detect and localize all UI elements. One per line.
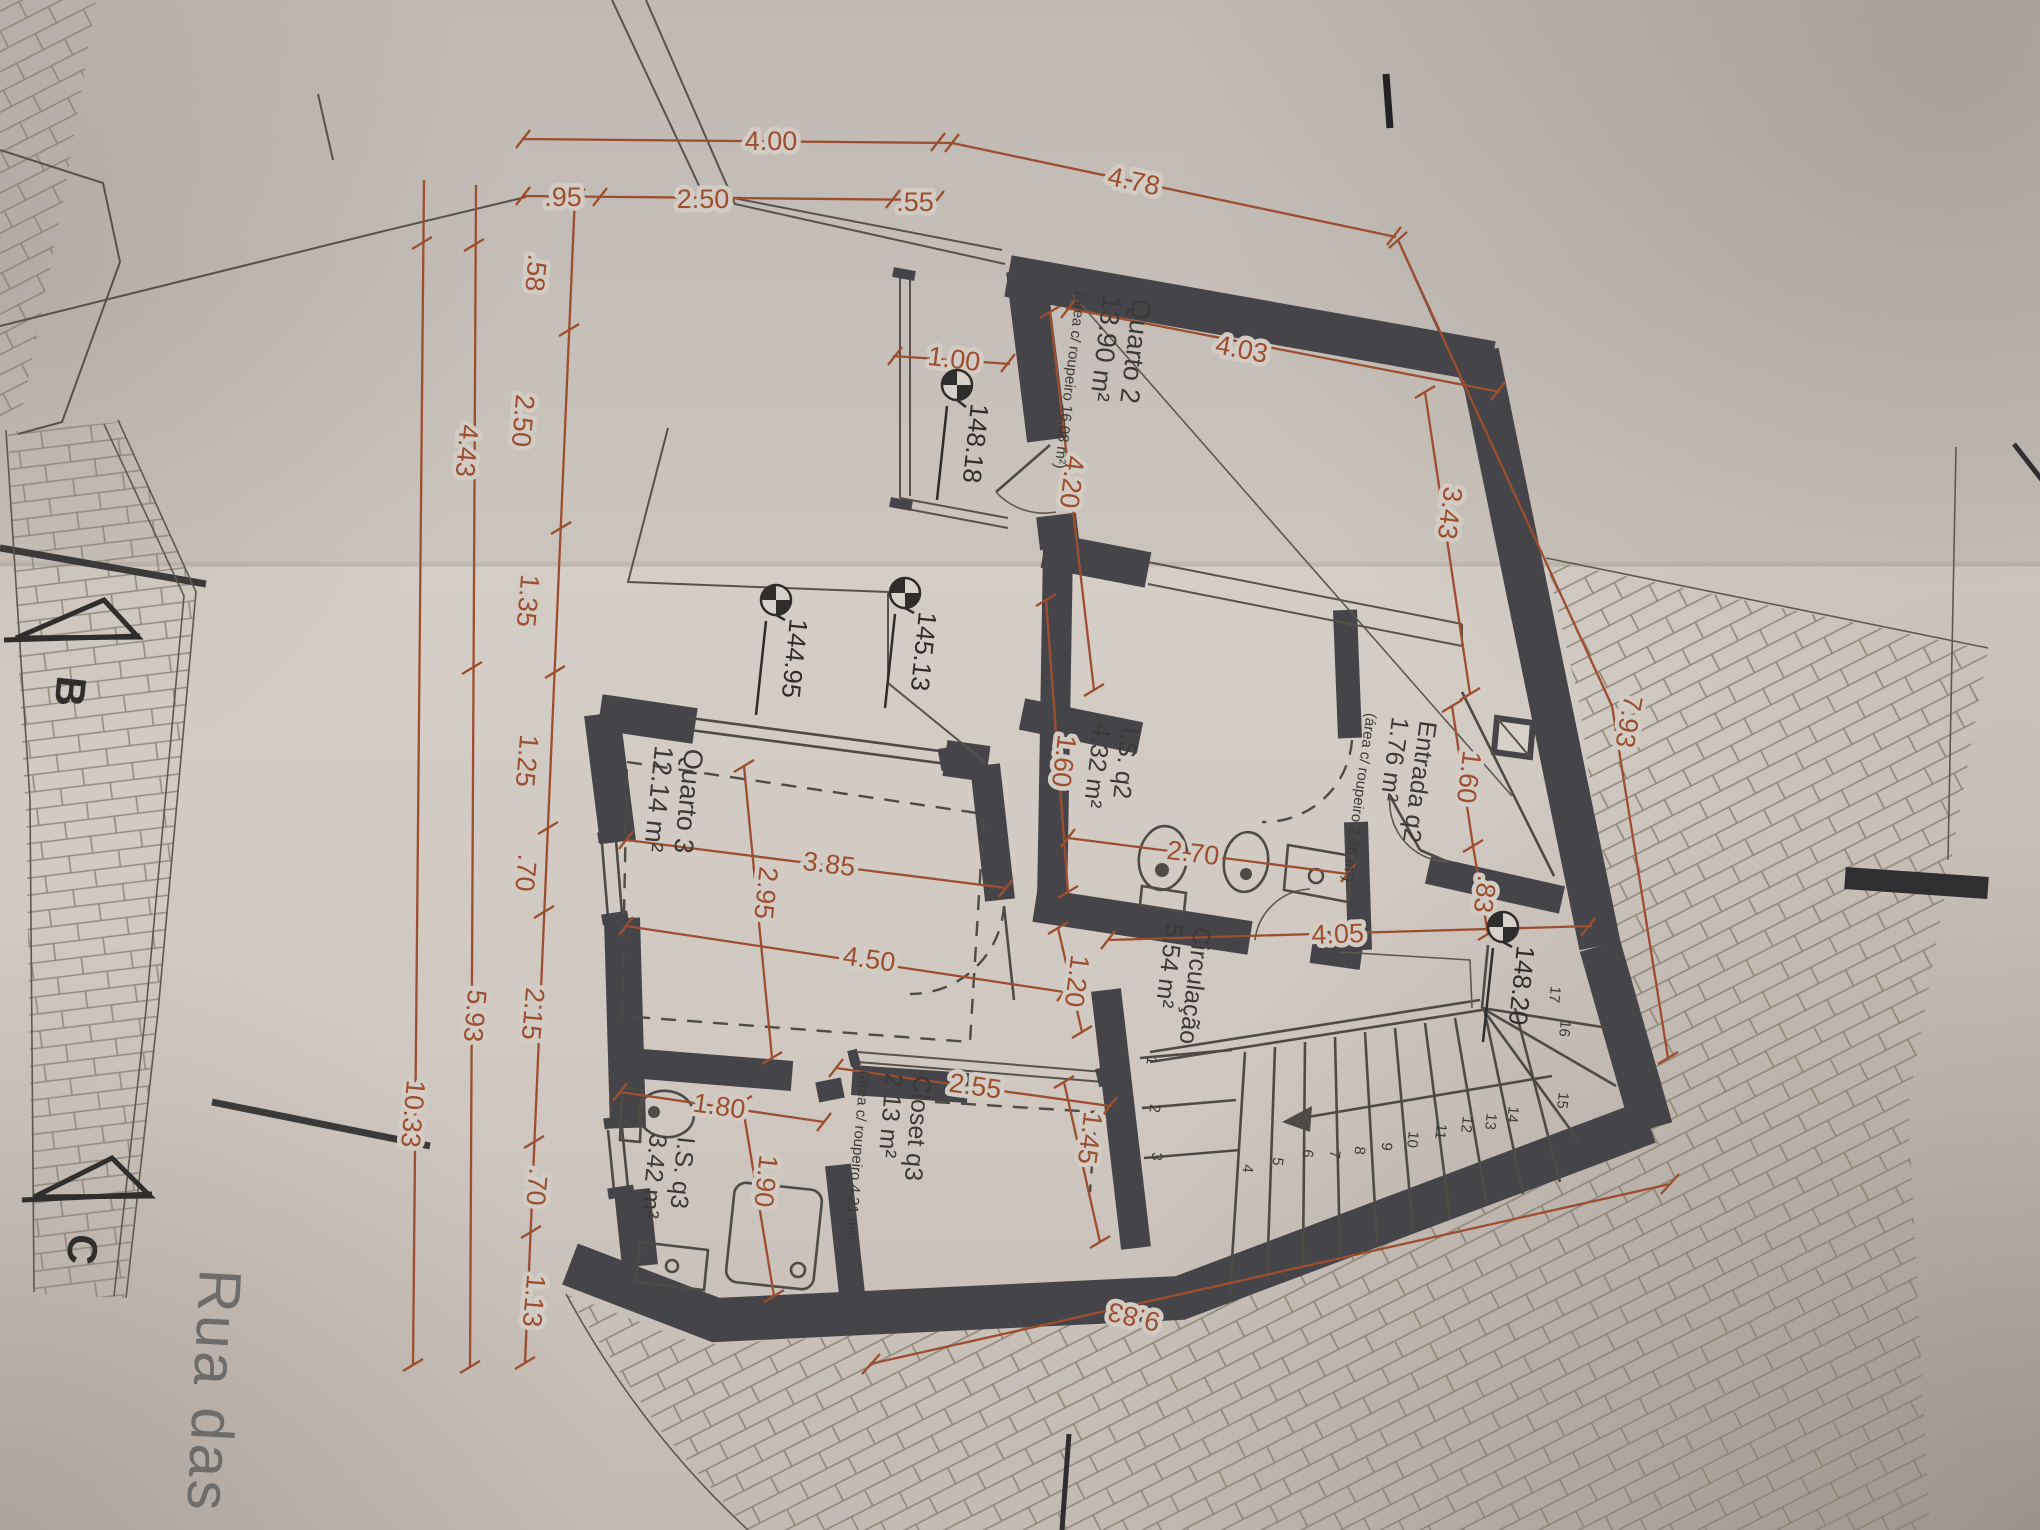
dim-4.00: 4.00	[745, 126, 798, 156]
dim-10.33: 10.33	[395, 1079, 431, 1149]
dim-0.95: .95	[544, 182, 582, 212]
tread-7: 7	[1326, 1149, 1344, 1159]
wall-quarto3-circ	[985, 765, 1000, 900]
wall-isq3-closet	[828, 1080, 832, 1100]
dim-1.90: 1.90	[748, 1153, 783, 1208]
dim-0.83: .83	[1468, 874, 1502, 915]
tread-14: 14	[1503, 1105, 1522, 1123]
dim-1.60-entrada: 1.60	[1451, 749, 1487, 805]
dim-0.58: .58	[519, 253, 552, 293]
plan-drawing: 1 2 3 4 5 6 7 8 9 10 11 12 13 14 15 16 1…	[0, 0, 2040, 1530]
tread-11: 11	[1431, 1123, 1450, 1140]
wall-entrada-divider	[1345, 610, 1350, 738]
tread-13: 13	[1481, 1112, 1500, 1130]
wall-quarto3-bottom	[618, 1062, 792, 1076]
dim-3.43: 3.43	[1432, 485, 1468, 541]
tread-3: 3	[1148, 1151, 1166, 1161]
dim-0.70-b: .70	[520, 1167, 553, 1207]
dim-4.05: 4.05	[1311, 918, 1365, 950]
tread-4: 4	[1239, 1163, 1257, 1173]
wall-quarto2-left	[1026, 270, 1047, 440]
boundary-bar-right	[1845, 878, 1988, 888]
wall-quarto3-left	[602, 714, 618, 842]
dim-2.95: 2.95	[748, 865, 783, 920]
dim-5.93: 5.93	[458, 988, 492, 1043]
tread-2: 2	[1146, 1103, 1164, 1113]
tread-12: 12	[1457, 1115, 1476, 1133]
tread-8: 8	[1351, 1145, 1369, 1155]
dim-0.55: .55	[896, 187, 934, 217]
tread-9: 9	[1378, 1141, 1396, 1151]
floor-plan-sheet: 1 2 3 4 5 6 7 8 9 10 11 12 13 14 15 16 1…	[0, 0, 2040, 1530]
svg-text:C: C	[57, 1232, 107, 1267]
dim-0.70-a: .70	[509, 853, 542, 893]
label-isq2: I.S. q2 4.32 m²	[1078, 722, 1144, 813]
label-quarto3: Quarto 3 12.14 m²	[637, 744, 708, 862]
dim-1.20: 1.20	[1059, 953, 1095, 1009]
dim-2.50-top: 2.50	[677, 184, 730, 214]
tread-5: 5	[1269, 1156, 1287, 1166]
dim-1.13: 1.13	[517, 1273, 551, 1328]
dim-3.85: 3.85	[801, 846, 857, 882]
dim-1.25: 1.25	[510, 733, 544, 788]
dim-1.45: 1.45	[1072, 1110, 1108, 1166]
svg-text:B: B	[45, 674, 95, 709]
tread-6: 6	[1299, 1148, 1317, 1158]
dim-2.15: 2.15	[516, 986, 550, 1041]
tread-16: 16	[1555, 1019, 1574, 1037]
dim-4.43: 4.43	[450, 423, 484, 478]
dim-1.60-isq2: 1.60	[1046, 733, 1082, 789]
dim-1.35: 1.35	[511, 573, 545, 628]
tread-17: 17	[1545, 985, 1564, 1003]
tread-10: 10	[1403, 1130, 1422, 1148]
dim-2.70: 2.70	[1165, 835, 1221, 871]
dim-2.50-left: 2.50	[506, 393, 540, 448]
label-isq3: I.S. q3 3.42 m²	[635, 1132, 700, 1222]
north-bar	[1386, 74, 1390, 128]
tread-15: 15	[1553, 1091, 1572, 1109]
tread-1: 1	[1143, 1055, 1161, 1065]
